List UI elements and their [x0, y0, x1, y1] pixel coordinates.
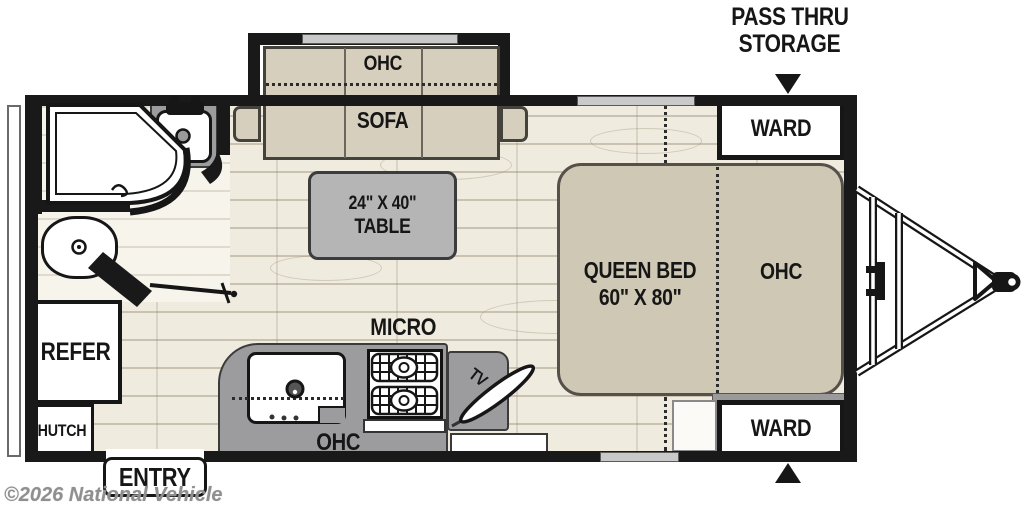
pass-thru-arrow-down-icon [775, 74, 801, 94]
watermark: ©2026 National Vehicle [4, 484, 223, 507]
hitch-coupler [992, 272, 1021, 292]
entry-step-counter [450, 433, 548, 453]
ward-bottom-label: WARD [745, 415, 817, 443]
partition-dotted-line [664, 106, 667, 163]
micro-label: MICRO [343, 314, 463, 342]
slideout-window [302, 34, 458, 44]
floor-grain [590, 128, 702, 154]
bath-wall-stub [38, 200, 130, 212]
stove [367, 349, 443, 419]
refer-label: REFER [34, 338, 117, 367]
sofa-armrest-right [500, 106, 528, 142]
storage-arrow-up-icon [775, 463, 801, 483]
window-bottom [600, 452, 679, 462]
wardrobe-top: WARD [717, 98, 845, 160]
window-top [577, 96, 695, 106]
ward-top-label: WARD [745, 115, 817, 143]
wall-top [25, 95, 857, 106]
bath-wall-right [217, 95, 230, 155]
sofa-armrest-left [233, 106, 261, 142]
pass-thru-callout: PASS THRU STORAGE [695, 4, 885, 58]
hutch: HUTCH [30, 404, 94, 458]
bedside-step [672, 400, 717, 452]
partition-dotted-line [664, 397, 667, 451]
refrigerator: REFER [30, 300, 122, 404]
tongue-jack [866, 262, 885, 300]
bath-wall-left-thick [25, 95, 42, 214]
bed-ohc-label: OHC [722, 258, 840, 285]
bath-sink [156, 110, 212, 163]
wardrobe-bottom: WARD [717, 400, 845, 458]
bed-label: QUEEN BED 60" X 80" [558, 257, 722, 311]
dinette-table: 24" X 40" TABLE [308, 171, 457, 260]
sofa-label: SOFA [300, 107, 466, 134]
sink-counter-notch [318, 406, 345, 423]
hutch-label: HUTCH [33, 421, 91, 441]
toilet [41, 216, 118, 279]
table-label: TABLE [349, 215, 416, 239]
sofa-ohc-label: OHC [300, 52, 466, 76]
hitch-frame [857, 189, 1021, 373]
table-size-label: 24" X 40" [342, 193, 423, 215]
wall-right [844, 95, 857, 462]
counter-dotted-line [232, 397, 344, 400]
rear-bumper [7, 105, 21, 457]
rv-floorplan: OHC SOFA 24" X 40" TABLE QUEEN BED 60" X… [0, 0, 1024, 512]
sofa-dotted-line [266, 83, 497, 86]
